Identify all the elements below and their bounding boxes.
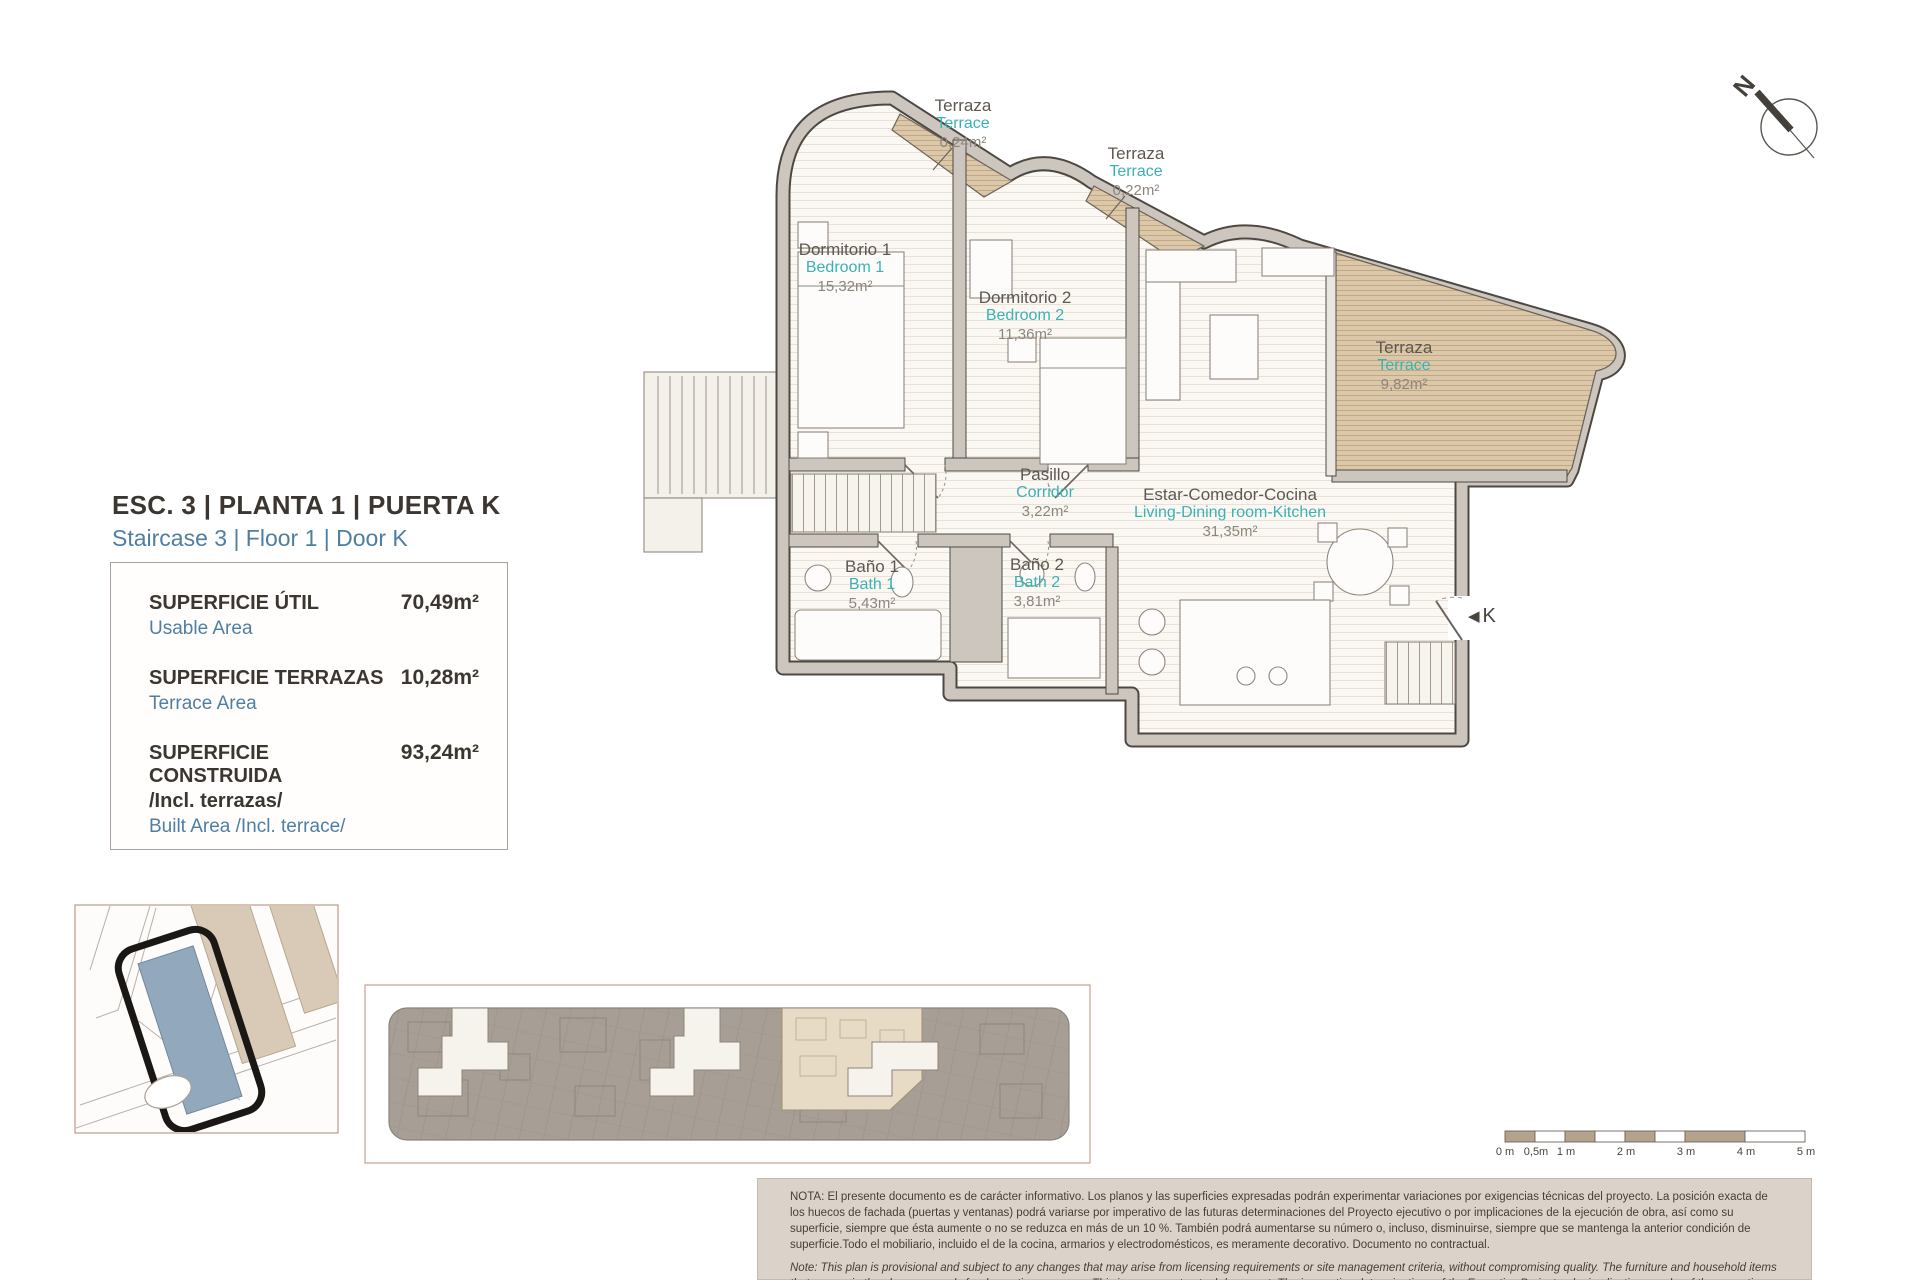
- summary-row-built: SUPERFICIE CONSTRUIDA 93,24m² /Incl. ter…: [149, 741, 479, 838]
- site-plan-thumbnail: [75, 886, 344, 1136]
- scale-bar: [1505, 1131, 1805, 1142]
- scale-tick-label: 1 m: [1557, 1146, 1575, 1158]
- room-label-bedroom-2: Dormitorio 2 Bedroom 2 11,36m²: [979, 288, 1072, 343]
- room-label-terrace-main: Terraza Terrace 9,82m²: [1376, 338, 1433, 393]
- room-name-es: Terraza: [1108, 144, 1165, 163]
- room-name-en: Terrace: [1108, 163, 1165, 181]
- room-label-bath-2: Baño 2 Bath 2 3,81m²: [1010, 555, 1064, 610]
- page-subtitle: Staircase 3 | Floor 1 | Door K: [112, 525, 500, 552]
- room-label-terrace-1: Terraza Terrace 0,24m²: [935, 96, 992, 151]
- room-name-en: Terrace: [1376, 357, 1433, 375]
- room-name-es: Dormitorio 1: [799, 240, 892, 259]
- room-label-living-kitchen: Estar-Comedor-Cocina Living-Dining room-…: [1134, 485, 1326, 540]
- room-name-en: Bath 2: [1010, 574, 1064, 592]
- summary-label-en: Terrace Area: [149, 693, 479, 715]
- building-floor-strip: [365, 985, 1126, 1163]
- compass-n-label: N: [1728, 70, 1761, 102]
- terrace-main: [1332, 252, 1616, 476]
- summary-value: 10,28m²: [401, 666, 479, 690]
- room-name-es: Terraza: [935, 96, 992, 115]
- disclaimer-note-box: NOTA: El presente documento es de caráct…: [757, 1178, 1812, 1280]
- note-spanish: NOTA: El presente documento es de caráct…: [790, 1190, 1785, 1253]
- room-label-corridor: Pasillo Corridor 3,22m²: [1016, 465, 1074, 520]
- scale-tick-label: 0,5m: [1524, 1146, 1548, 1158]
- room-label-terrace-2: Terraza Terrace 0,22m²: [1108, 144, 1165, 199]
- room-area: 5,43m²: [845, 595, 899, 612]
- room-name-en: Bedroom 2: [979, 307, 1072, 325]
- room-name-en: Bedroom 1: [799, 259, 892, 277]
- summary-label-es2: /Incl. terrazas/: [149, 790, 479, 813]
- summary-value: 93,24m²: [401, 741, 479, 765]
- room-name-en: Bath 1: [845, 576, 899, 594]
- room-name-es: Estar-Comedor-Cocina: [1134, 485, 1326, 504]
- entry-arrow-icon: ◀: [1468, 609, 1480, 624]
- communal-stairs: [644, 372, 779, 552]
- summary-label-es: SUPERFICIE CONSTRUIDA: [149, 742, 401, 788]
- summary-row-usable: SUPERFICIE ÚTIL 70,49m² Usable Area: [149, 591, 479, 640]
- scale-tick-label: 4 m: [1737, 1146, 1755, 1158]
- scale-tick-label: 2 m: [1617, 1146, 1635, 1158]
- room-area: 3,81m²: [1010, 593, 1064, 610]
- note-english: Note: This plan is provisional and subje…: [790, 1261, 1785, 1280]
- room-name-en: Terrace: [935, 115, 992, 133]
- area-summary-box: SUPERFICIE ÚTIL 70,49m² Usable Area SUPE…: [110, 562, 508, 850]
- room-area: 15,32m²: [799, 278, 892, 295]
- room-label-bath-1: Baño 1 Bath 1 5,43m²: [845, 557, 899, 612]
- summary-value: 70,49m²: [401, 591, 479, 615]
- summary-label-en: Usable Area: [149, 618, 479, 640]
- room-area: 0,24m²: [935, 134, 992, 151]
- room-area: 11,36m²: [979, 326, 1072, 343]
- room-name-en: Living-Dining room-Kitchen: [1134, 504, 1326, 522]
- title-block: ESC. 3 | PLANTA 1 | PUERTA K Staircase 3…: [112, 490, 500, 552]
- summary-label-en: Built Area /Incl. terrace/: [149, 816, 479, 838]
- room-name-es: Terraza: [1376, 338, 1433, 357]
- page-title: ESC. 3 | PLANTA 1 | PUERTA K: [112, 490, 500, 521]
- summary-label-es: SUPERFICIE TERRAZAS: [149, 667, 383, 690]
- entry-door-marker: ◀ K: [1468, 606, 1496, 626]
- room-label-bedroom-1: Dormitorio 1 Bedroom 1 15,32m²: [799, 240, 892, 295]
- room-name-es: Pasillo: [1016, 465, 1074, 484]
- room-name-es: Dormitorio 2: [979, 288, 1072, 307]
- room-name-es: Baño 2: [1010, 555, 1064, 574]
- room-name-es: Baño 1: [845, 557, 899, 576]
- scale-tick-label: 5 m: [1797, 1146, 1815, 1158]
- scale-tick-label: 0 m: [1496, 1146, 1514, 1158]
- entry-door-letter: K: [1483, 606, 1496, 626]
- room-name-en: Corridor: [1016, 484, 1074, 502]
- room-area: 31,35m²: [1134, 523, 1326, 540]
- floorplan-sheet: N: [0, 0, 1920, 1280]
- room-area: 0,22m²: [1108, 182, 1165, 199]
- room-area: 3,22m²: [1016, 503, 1074, 520]
- scale-tick-label: 3 m: [1677, 1146, 1695, 1158]
- north-compass: N: [1728, 70, 1817, 158]
- room-area: 9,82m²: [1376, 376, 1433, 393]
- terrace-window-wall: [1326, 252, 1336, 476]
- summary-label-es: SUPERFICIE ÚTIL: [149, 592, 319, 615]
- summary-row-terrace: SUPERFICIE TERRAZAS 10,28m² Terrace Area: [149, 666, 479, 715]
